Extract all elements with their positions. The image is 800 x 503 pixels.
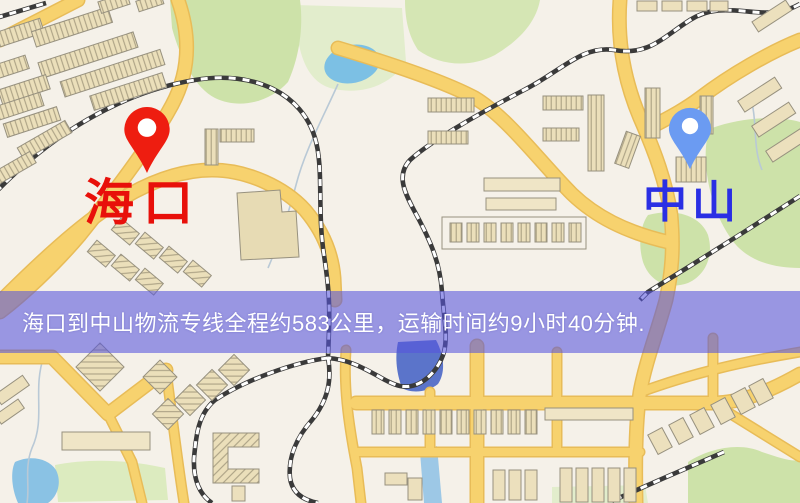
destination-city-label: 中山 (643, 181, 741, 225)
origin-city-label: 海口 (84, 178, 202, 228)
destination-pin-icon[interactable] (667, 105, 713, 172)
map-canvas[interactable] (0, 0, 800, 503)
origin-pin-hole (138, 118, 157, 137)
route-banner: 海口到中山物流专线全程约583公里，运输时间约9小时40分钟. (0, 291, 800, 353)
route-banner-text: 海口到中山物流专线全程约583公里，运输时间约9小时40分钟. (0, 306, 645, 338)
origin-pin-icon[interactable] (122, 106, 172, 174)
map-screenshot: 海口到中山物流专线全程约583公里，运输时间约9小时40分钟. 海口 中山 (0, 0, 800, 503)
origin-pin-body (124, 107, 169, 173)
destination-pin-body (669, 108, 711, 169)
destination-pin-hole (682, 118, 698, 134)
